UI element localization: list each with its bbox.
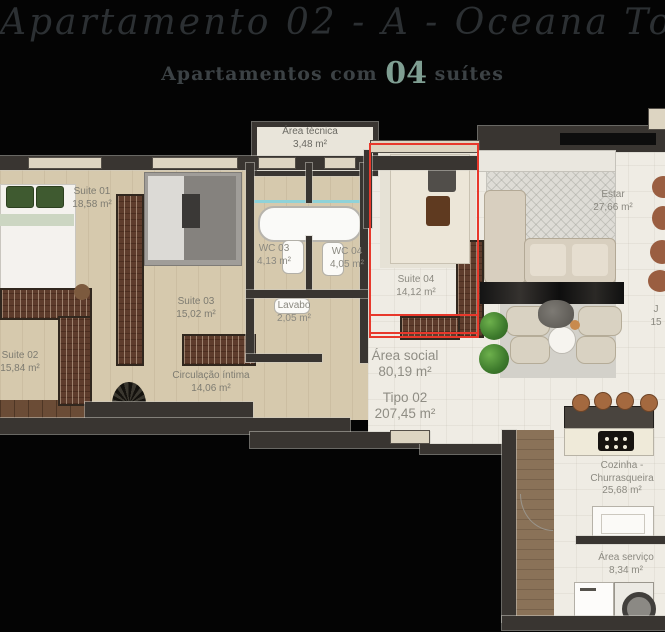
closet-suite03 bbox=[182, 334, 256, 366]
sink-basin bbox=[601, 514, 645, 534]
suite04-closet-highlight bbox=[369, 314, 479, 338]
script-title: Apartamento 02 - A - Oceana Tower bbox=[0, 2, 665, 43]
window-wc03 bbox=[258, 157, 296, 169]
wall-bottom-right bbox=[502, 616, 665, 630]
subtitle-suffix: suítes bbox=[435, 63, 504, 85]
wall-suite03-wc bbox=[246, 163, 254, 362]
room-label-estar: Estar 27,66 m² bbox=[593, 189, 632, 214]
closet-suite01 bbox=[116, 194, 144, 366]
suite04-highlight-outline bbox=[369, 143, 479, 334]
suite01-blanket bbox=[0, 214, 74, 226]
plant-bush bbox=[480, 312, 508, 340]
cooktop-icon bbox=[598, 431, 634, 451]
suite03-bed-sheet bbox=[148, 176, 184, 260]
room-label-wc03: WC 03 4,13 m² bbox=[257, 243, 291, 268]
room-label-suite02: Suite 02 15,84 m² bbox=[0, 350, 39, 375]
window-suite03 bbox=[152, 157, 238, 169]
background-mask bbox=[420, 454, 504, 632]
bar-stool bbox=[616, 392, 634, 410]
suite01-nightstand bbox=[74, 284, 90, 300]
room-label-cozinha: Cozinha - Churrasqueira 25,68 m² bbox=[574, 460, 665, 498]
wall-lavabo-bottom bbox=[246, 354, 322, 362]
armchair-left-seat bbox=[510, 336, 550, 364]
armchair-right-seat bbox=[576, 336, 616, 364]
corner-cabinet bbox=[648, 108, 665, 130]
background-mask bbox=[250, 448, 422, 632]
wall-wc-divider-bottom bbox=[306, 236, 312, 292]
bar-stool bbox=[640, 394, 658, 412]
room-label-suite03: Suite 03 15,02 m² bbox=[176, 296, 215, 321]
suite01-pillow bbox=[36, 186, 64, 208]
decor-orange-dot bbox=[570, 320, 580, 330]
room-label-area-social: Área social 80,19 m² bbox=[372, 348, 439, 380]
subtitle-prefix: Apartamentos com bbox=[161, 63, 378, 85]
plant-gray bbox=[538, 300, 574, 328]
side-table-round bbox=[548, 326, 576, 354]
room-label-tipo02: Tipo 02 207,45 m² bbox=[375, 390, 436, 422]
room-label-wc04: WC 04 4,05 m² bbox=[330, 246, 364, 271]
room-label-suite01: Suite 01 18,58 m² bbox=[72, 186, 111, 211]
closet-suite02-side bbox=[58, 316, 92, 406]
sofa-cushion bbox=[530, 244, 566, 276]
wall-corridor-left bbox=[502, 430, 516, 622]
room-label-circulacao: Circulação íntima 14,06 m² bbox=[172, 370, 249, 395]
tv-icon bbox=[560, 133, 656, 145]
suite01-pillow bbox=[6, 186, 34, 208]
cabinet-handle bbox=[580, 588, 596, 591]
wall-lavabo-top bbox=[246, 290, 368, 298]
subtitle: Apartamentos com 04 suítes bbox=[0, 56, 665, 91]
wall-bottom-step bbox=[420, 444, 512, 454]
window-suite01 bbox=[28, 157, 102, 169]
armchair-right-back bbox=[578, 306, 622, 336]
subtitle-number: 04 bbox=[385, 56, 427, 91]
window-wc04 bbox=[324, 157, 356, 169]
room-label-area-servico: Área serviço 8,34 m² bbox=[598, 552, 654, 577]
plant-bush bbox=[479, 344, 509, 374]
floorplan-canvas: Apartamento 02 - A - Oceana Tower Aparta… bbox=[0, 0, 665, 632]
dining-chair bbox=[648, 270, 665, 292]
estar-shelf bbox=[478, 150, 616, 172]
bar-stool bbox=[594, 392, 612, 410]
suite03-pillow bbox=[182, 194, 200, 228]
room-label-lavabo: Lavabo 2,05 m² bbox=[277, 300, 311, 325]
cooktop-burners bbox=[605, 437, 609, 441]
wall-kitchen-service-divider bbox=[576, 536, 665, 544]
background-mask bbox=[0, 434, 252, 632]
sofa-cushion bbox=[572, 244, 608, 276]
wall-wc-divider-top bbox=[306, 163, 312, 203]
room-label-edge-fragment: J 15 bbox=[650, 304, 661, 329]
sofa-chaise bbox=[484, 190, 526, 284]
room-label-area-tecnica: Área técnica 3,48 m² bbox=[282, 126, 338, 151]
entry-door bbox=[390, 430, 430, 444]
bar-stool bbox=[572, 394, 590, 412]
